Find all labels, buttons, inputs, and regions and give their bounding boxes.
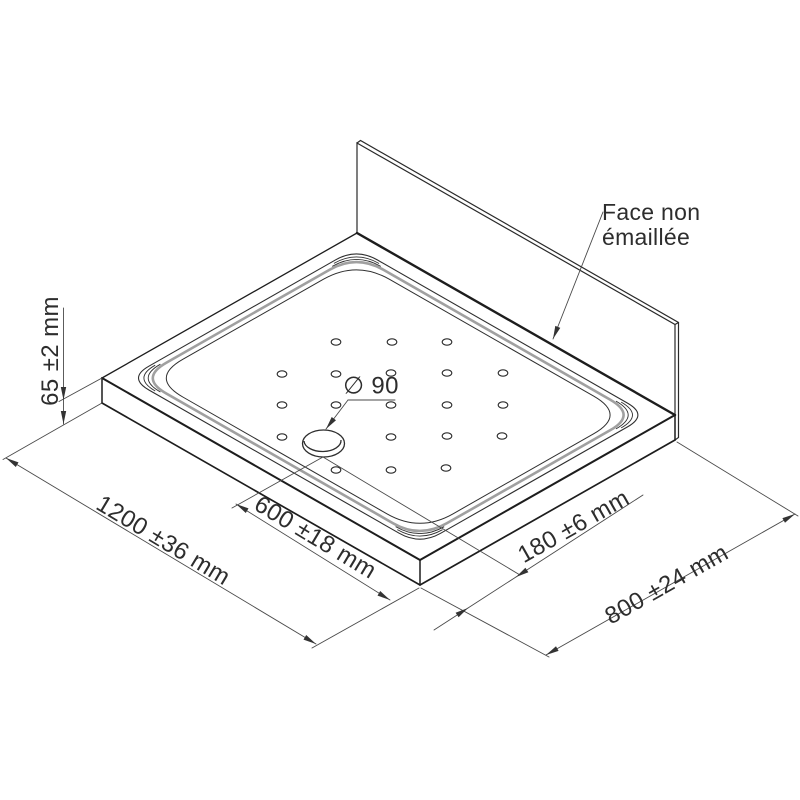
anti-slip-dot (497, 433, 507, 439)
arrowhead (546, 646, 559, 655)
arrowhead (6, 458, 19, 467)
anti-slip-dot (442, 402, 452, 408)
dimension-line (312, 588, 419, 648)
arrowhead (304, 635, 317, 644)
dimension-line (421, 588, 549, 657)
drain-diameter-label: ∅ 90 (343, 372, 399, 401)
arrowhead (378, 591, 391, 600)
anti-slip-dot (277, 434, 287, 440)
anti-slip-dot (331, 467, 341, 473)
anti-slip-dot (331, 371, 341, 377)
anti-slip-dot (331, 402, 341, 408)
anti-slip-dot (331, 339, 341, 345)
arrowhead (61, 411, 66, 424)
anti-slip-dot (498, 402, 508, 408)
anti-slip-dot (386, 434, 396, 440)
dimension-line (677, 442, 798, 516)
drawing-canvas (0, 0, 800, 800)
dimension-line (468, 577, 516, 608)
anti-slip-dot (277, 402, 287, 408)
face-note: Face non émaillée (602, 200, 700, 250)
anti-slip-dot (277, 371, 287, 377)
face-note-line1: Face non (602, 200, 700, 225)
anti-slip-dot (386, 402, 396, 408)
anti-slip-dot (442, 433, 452, 439)
drain-hole (303, 430, 345, 457)
anti-slip-dot (441, 465, 451, 471)
shower-tray-technical-drawing: 65 ±2 mm 1200 ±36 mm 600 ±18 mm 180 ±6 m… (0, 0, 800, 800)
anti-slip-dot (386, 467, 396, 473)
anti-slip-dot (387, 339, 397, 345)
face-note-line2: émaillée (602, 225, 700, 250)
anti-slip-dot (442, 339, 452, 345)
arrowhead (782, 514, 795, 523)
anti-slip-dot (498, 370, 508, 376)
arrowhead (236, 504, 249, 513)
dimension-line (3, 403, 102, 460)
dim-label-height: 65 ±2 mm (37, 296, 65, 406)
anti-slip-dot (442, 370, 452, 376)
